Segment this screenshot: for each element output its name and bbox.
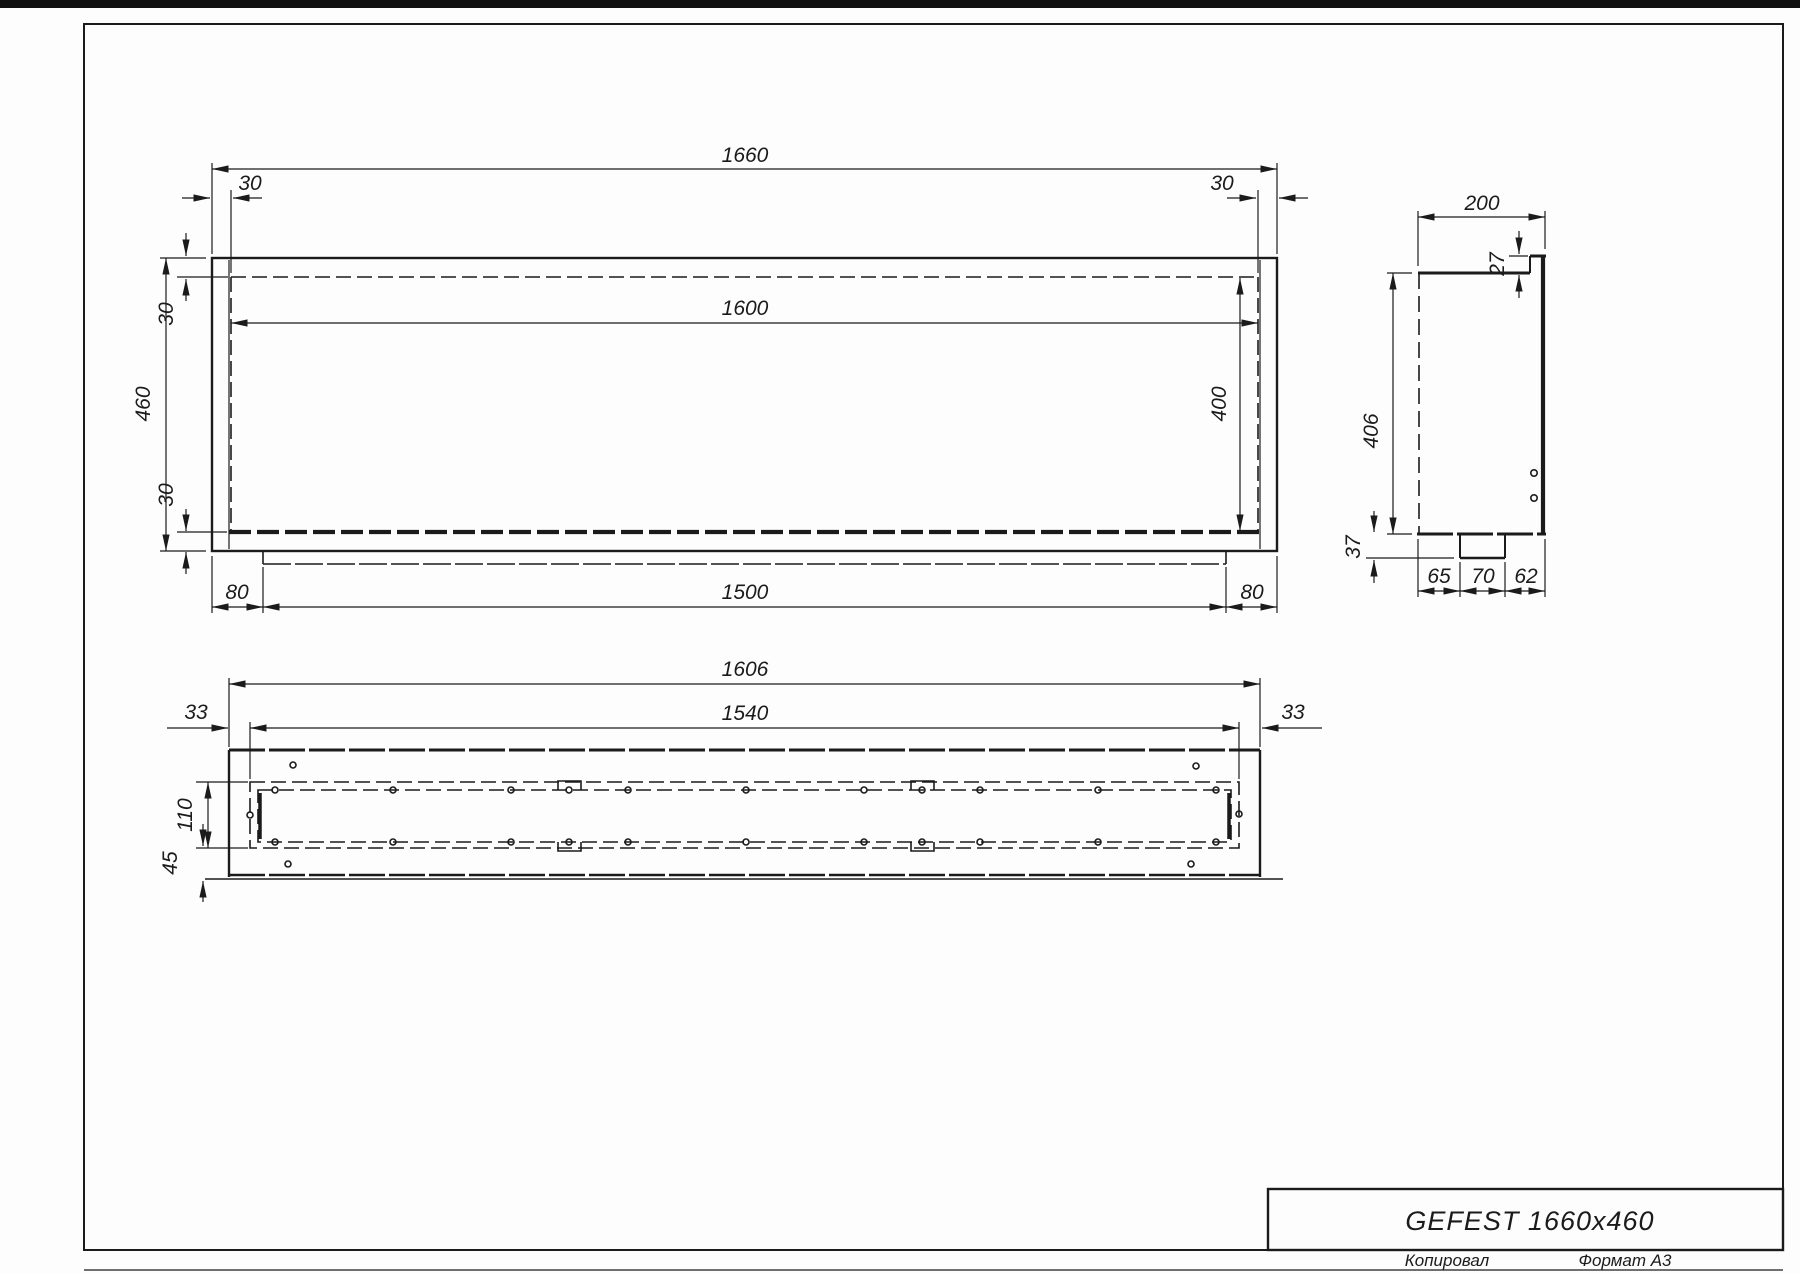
dim-side-notch-height: 37 (1342, 534, 1365, 559)
dim-plan-body-width: 1606 (722, 658, 769, 681)
dim-side-depth: 200 (1463, 192, 1499, 215)
dim-front-tray-offset-right: 80 (1240, 581, 1264, 604)
dim-front-bottom-inset: 30 (155, 483, 178, 507)
plan-view: 1606 1540 33 33 110 45 (159, 658, 1322, 902)
drawing-canvas: 1660 30 30 1600 400 460 30 30 (0, 0, 1800, 1273)
plan-burner-inner (258, 790, 1231, 842)
side-hole-1 (1531, 470, 1537, 476)
drawing-title: GEFEST 1660x460 (1405, 1206, 1654, 1236)
dim-front-flange-left: 30 (238, 172, 262, 195)
dim-side-notch-offset: 65 (1427, 565, 1451, 588)
dim-plan-inset-left: 33 (184, 701, 208, 724)
dim-side-notch-width: 70 (1471, 565, 1495, 588)
footer-format-label: Формат А3 (1578, 1251, 1672, 1270)
dim-plan-front-gap: 45 (159, 851, 182, 875)
dim-front-tray-width: 1500 (722, 581, 769, 604)
dim-plan-burner-width: 1540 (722, 702, 769, 725)
dim-front-overall-height: 460 (132, 386, 155, 421)
dim-front-tray-offset-left: 80 (225, 581, 249, 604)
dim-front-flange-right: 30 (1210, 172, 1234, 195)
title-block: GEFEST 1660x460 Копировал Формат А3 (1268, 1189, 1783, 1270)
dim-side-flange-height: 27 (1486, 251, 1509, 277)
dim-front-opening-height: 400 (1208, 386, 1231, 421)
scan-strip (0, 0, 1800, 8)
dim-plan-inset-right: 33 (1281, 701, 1305, 724)
plan-hole-pattern (247, 762, 1242, 867)
dim-plan-burner-depth: 110 (174, 798, 197, 832)
dim-side-notch-to-front: 62 (1514, 565, 1538, 588)
drawing-sheet: 1660 30 30 1600 400 460 30 30 (0, 0, 1800, 1273)
sheet-frame (84, 24, 1783, 1250)
dim-side-body-height: 406 (1360, 413, 1383, 448)
side-view: 200 27 406 37 65 70 62 (1342, 192, 1546, 597)
plan-tab (911, 842, 934, 851)
dim-front-overall-width: 1660 (722, 144, 769, 167)
front-view: 1660 30 30 1600 400 460 30 30 (132, 144, 1308, 613)
dim-front-top-inset: 30 (155, 302, 178, 326)
footer-copied-label: Копировал (1405, 1251, 1490, 1270)
plan-tab (558, 842, 581, 851)
dim-front-opening-width: 1600 (722, 297, 769, 320)
side-hole-2 (1531, 495, 1537, 501)
